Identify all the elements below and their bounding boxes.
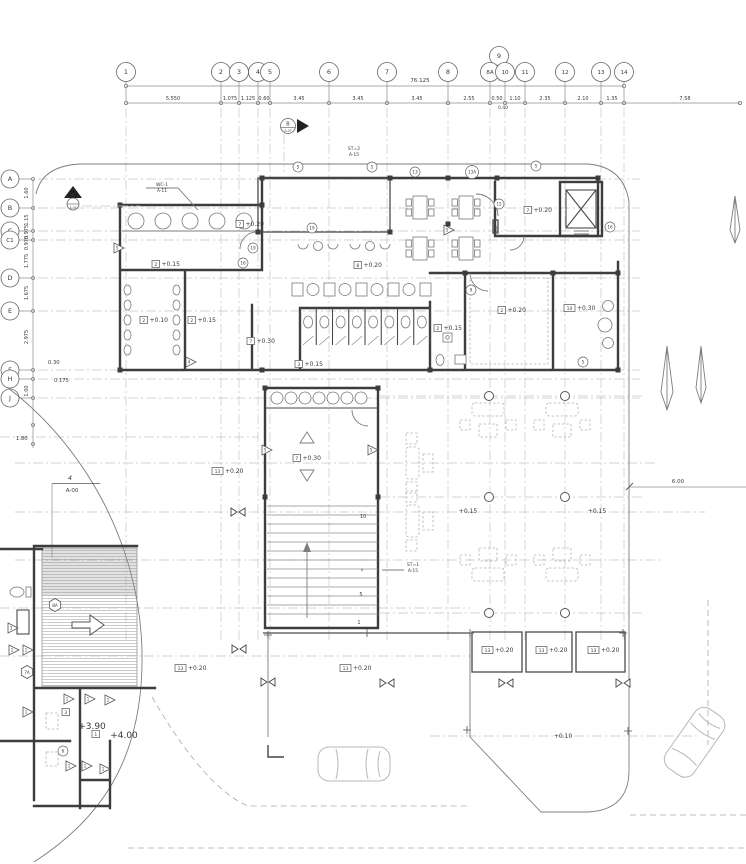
- grid-bubble-label: 12: [561, 70, 568, 76]
- building-walls: [0, 178, 625, 808]
- grid-bubble-label: J: [8, 394, 11, 402]
- floor-plan-drawing: 1234567898A1011121314ABCC1DEFHJ5.5501.07…: [0, 0, 746, 864]
- armchair: [406, 540, 417, 551]
- dining-chair: [475, 209, 481, 216]
- grid-bubble-label: 8: [446, 68, 450, 76]
- level-triangle-down: [300, 470, 314, 481]
- tree-icon: [661, 346, 673, 410]
- storage-counter-dashed: [470, 278, 548, 364]
- dining-chair: [475, 199, 481, 206]
- annotation: +3.90: [78, 722, 106, 732]
- toilet-fixture: [436, 355, 444, 366]
- coffee-table: [423, 512, 433, 530]
- site-edge-southeast: [470, 633, 629, 812]
- urinal: [124, 315, 131, 325]
- lavatory-round: [339, 284, 351, 296]
- counter-stool-round: [314, 242, 323, 251]
- dimension-label: 0.40: [498, 105, 508, 111]
- wall-tick: [466, 629, 474, 637]
- dimension-label: 2.10: [577, 96, 588, 102]
- grid-bubble-label: 2: [219, 68, 223, 76]
- toilet-pan: [401, 316, 410, 328]
- driveway-dashed-edge: [152, 697, 470, 806]
- annotation: +0.10: [554, 733, 573, 740]
- level-box-number: 2: [142, 318, 145, 324]
- wall-tick: [264, 631, 272, 639]
- armchair: [460, 420, 470, 430]
- urinal: [124, 285, 131, 295]
- keynote-number: 1: [66, 697, 69, 702]
- level-value: +0.10: [150, 317, 169, 324]
- column-square: [256, 230, 261, 235]
- locker-circle: [355, 392, 367, 404]
- car-top-view: [318, 747, 390, 781]
- stall-door: [303, 336, 314, 345]
- column-square: [263, 386, 268, 391]
- annotation: 10: [360, 514, 366, 520]
- column-circle: [485, 493, 494, 502]
- toilet-pan: [320, 316, 329, 328]
- grid-bubble-label: A: [8, 175, 13, 183]
- urinal: [173, 345, 180, 355]
- keynote-number: 4: [188, 360, 191, 365]
- level-box-number: 7: [238, 222, 241, 228]
- column-bowtie: [232, 645, 246, 653]
- keynote-number: 1: [84, 764, 87, 769]
- column-square: [495, 176, 500, 181]
- dining-chair: [452, 209, 458, 216]
- lavatory: [292, 283, 303, 296]
- counter-stool: [328, 244, 338, 249]
- section-sheet-ref: A-05: [69, 206, 76, 210]
- dimension-label: 1.80: [16, 436, 28, 442]
- level-value: +0.20: [364, 262, 383, 269]
- coffee-table: [553, 548, 571, 561]
- keynote-number: 1: [107, 698, 110, 703]
- stair-arrow-head: [303, 542, 311, 552]
- level-value: +0.15: [162, 261, 181, 268]
- grid-bubble-label: D: [7, 274, 12, 282]
- level-value: +0.30: [257, 338, 276, 345]
- stall-door: [417, 336, 428, 345]
- elevator-door: [574, 231, 589, 234]
- toilet-pan: [336, 316, 345, 328]
- wall-tick: [624, 727, 632, 735]
- toilet-pan: [385, 316, 394, 328]
- annotation: +0.15: [459, 508, 478, 515]
- trees: [661, 196, 740, 410]
- dining-table: [459, 196, 473, 219]
- locker-circle: [285, 392, 297, 404]
- keynote-number: 16: [240, 261, 246, 266]
- column-square: [118, 203, 123, 208]
- keynote-number: 5: [371, 165, 374, 170]
- column-square: [118, 368, 123, 373]
- level-triangle-up: [300, 432, 314, 443]
- keynote-number: 19: [250, 246, 256, 251]
- level-box-number: 13: [539, 648, 545, 654]
- dimension-label: 0.30: [48, 360, 60, 366]
- keynote-number: 5: [582, 360, 585, 365]
- wash-basin: [182, 213, 198, 229]
- tree-icon: [696, 346, 706, 403]
- dining-chair: [475, 240, 481, 247]
- level-value: +0.20: [534, 207, 553, 214]
- grid-bubble-label: 5: [268, 68, 272, 76]
- dimension-label: 1.00: [24, 385, 30, 396]
- locker-circle: [313, 392, 325, 404]
- column-square: [260, 203, 265, 208]
- keynote-number: 1: [11, 648, 14, 653]
- keynote-number: 16: [607, 225, 613, 230]
- closet: [17, 610, 29, 634]
- column-square: [376, 495, 381, 500]
- detail-number: 4: [68, 474, 72, 482]
- keynote-number: 13A: [468, 170, 476, 175]
- level-box-number: 13: [215, 469, 221, 475]
- locker-circle: [327, 392, 339, 404]
- dimension-label: 0.50: [491, 96, 502, 102]
- wall-tick: [619, 629, 627, 637]
- level-box-number: 10: [567, 306, 573, 312]
- level-box-number: 3: [64, 710, 67, 716]
- ramp: [42, 548, 137, 686]
- counter-stool: [298, 244, 308, 249]
- section-marker-triangle: [297, 119, 309, 133]
- urinal: [124, 300, 131, 310]
- armchair: [406, 433, 417, 444]
- dining-chair: [475, 250, 481, 257]
- column-bowtie: [380, 679, 394, 687]
- column-bowtie: [616, 679, 630, 687]
- grid-bubble-label: 7: [385, 68, 389, 76]
- keynote-number: 1: [25, 710, 28, 715]
- sofa-vertical: [406, 505, 419, 537]
- section-letter: B: [286, 122, 290, 128]
- wash-basin: [155, 213, 171, 229]
- toilet-pan: [352, 316, 361, 328]
- callout-title: ST=2: [348, 146, 360, 152]
- urinal: [173, 315, 180, 325]
- urinal: [173, 300, 180, 310]
- grid-bubble-label: B: [8, 204, 12, 212]
- urinal: [173, 285, 180, 295]
- dimension-label: 0.975: [24, 236, 30, 250]
- stall-door: [401, 336, 412, 345]
- grid-bubble-label: 4: [256, 68, 260, 76]
- level-box-number: 1: [94, 732, 97, 738]
- tree-icon: [730, 196, 740, 243]
- coffee-table: [479, 424, 497, 437]
- sofa: [546, 403, 578, 416]
- armchair: [506, 420, 516, 430]
- dining-chair: [406, 240, 412, 247]
- column-square: [551, 271, 556, 276]
- keynote-number: 5: [370, 448, 373, 453]
- column-square: [376, 386, 381, 391]
- dining-chair: [406, 250, 412, 257]
- level-value: +0.20: [188, 665, 207, 672]
- annotation: FHC: [494, 224, 499, 232]
- toilet-pan: [417, 316, 426, 328]
- level-box-number: 7: [249, 339, 252, 345]
- keynote-number: 1: [87, 697, 90, 702]
- dining-chair: [452, 240, 458, 247]
- keynote-number: 5: [535, 164, 538, 169]
- annotation: +4.00: [110, 731, 138, 741]
- dining-chair: [406, 209, 412, 216]
- dimension-label: 3.45: [352, 96, 363, 102]
- lavatory: [388, 283, 399, 296]
- level-value: +0.30: [577, 305, 596, 312]
- keynote-number: 5: [264, 448, 267, 453]
- column-square: [446, 176, 451, 181]
- dimension-label: 2.975: [24, 330, 30, 344]
- coffee-table: [479, 548, 497, 561]
- furniture-layer: [231, 392, 630, 688]
- wc-toilet: [10, 587, 24, 597]
- callout-ref: A-15: [349, 152, 359, 158]
- stall-door: [352, 336, 363, 345]
- grid-bubble-label: E: [8, 307, 12, 315]
- lavatory-round: [403, 284, 415, 296]
- keynote-number: 1: [25, 648, 28, 653]
- dining-chair: [429, 240, 435, 247]
- dimension-label: 1.125: [241, 96, 255, 102]
- column-square: [388, 176, 393, 181]
- stall-door: [336, 336, 347, 345]
- coffee-table: [553, 424, 571, 437]
- section-sheet-ref: A-07: [284, 129, 291, 133]
- lavatory: [420, 283, 431, 296]
- level-value: +0.20: [353, 665, 372, 672]
- level-box-number: 2: [190, 318, 193, 324]
- keynote-number: 9: [470, 288, 473, 293]
- column-square: [260, 176, 265, 181]
- grid-bubble-label: H: [8, 375, 13, 383]
- keynote-number: 5: [446, 228, 449, 233]
- column-square: [596, 176, 601, 181]
- annotation: +0.15: [588, 508, 607, 515]
- keynote-number: 8A: [52, 603, 58, 608]
- callout-leader: [146, 188, 198, 210]
- level-value: +0.15: [444, 325, 463, 332]
- level-box-number: 13: [591, 648, 597, 654]
- level-box-number: 2: [500, 308, 503, 314]
- dimension-label: 7.58: [679, 96, 690, 102]
- level-value: +0.20: [508, 307, 527, 314]
- column-square: [616, 368, 621, 373]
- kitchen-sink-1: [603, 301, 614, 312]
- column-square: [388, 230, 393, 235]
- level-value: +0.15: [198, 317, 217, 324]
- level-box-number: 13: [485, 648, 491, 654]
- grid-bubble-label: 6: [327, 68, 331, 76]
- kitchen-sink-3: [603, 338, 614, 349]
- column-square: [463, 271, 468, 276]
- keynote-number: 19: [309, 226, 315, 231]
- level-box-number: 2: [154, 262, 157, 268]
- cars: [318, 703, 729, 781]
- callout-ref: A-11: [157, 188, 167, 194]
- elevator-x: [566, 190, 596, 228]
- kitchen-room: [258, 178, 390, 232]
- sofa: [472, 403, 504, 416]
- dimension-label: 3.45: [293, 96, 304, 102]
- stall-door: [319, 336, 330, 345]
- dining-chair: [429, 209, 435, 216]
- annotation: ‹: [361, 566, 364, 574]
- stall-door: [368, 336, 379, 345]
- floor-opening-2: [46, 752, 58, 766]
- level-box-number: 3: [297, 362, 300, 368]
- grid-bubble-label: C1: [6, 238, 14, 244]
- curb-bracket: [268, 745, 284, 757]
- callout-title: ST=1: [407, 562, 419, 568]
- sofa: [472, 568, 504, 581]
- dimension-label: 5.550: [166, 96, 180, 102]
- column-bowtie: [499, 679, 513, 687]
- floor-plan-page: 1234567898A1011121314ABCC1DEFHJ5.5501.07…: [0, 0, 746, 864]
- grid-bubble-label: 8A: [486, 70, 494, 76]
- counter-stool: [350, 244, 360, 249]
- keynote-number: 3: [10, 626, 13, 631]
- urinal: [173, 330, 180, 340]
- mop-sink-drain: [446, 336, 450, 340]
- sofa: [546, 568, 578, 581]
- door-swings: [240, 194, 524, 426]
- armchair: [580, 420, 590, 430]
- locker-circle: [341, 392, 353, 404]
- column-circle: [485, 392, 494, 401]
- level-box-number: 13: [178, 666, 184, 672]
- column-circle: [561, 493, 570, 502]
- grid-bubble-label: 1: [124, 68, 128, 76]
- dimension-label: 1.075: [223, 96, 237, 102]
- wash-basin: [128, 213, 144, 229]
- car-top-view: [660, 703, 729, 781]
- dining-chair: [406, 199, 412, 206]
- dining-table: [459, 237, 473, 260]
- keynote-number: 1: [68, 764, 71, 769]
- level-box-number: 8: [356, 263, 359, 269]
- sink-fixture: [455, 355, 466, 364]
- level-box-number: 2: [436, 326, 439, 332]
- toilet-pan: [369, 316, 378, 328]
- dimension-label: 0.60: [258, 96, 269, 102]
- keynote-number: 5: [297, 165, 300, 170]
- lavatory: [324, 283, 335, 296]
- dimension-label: 1.15: [24, 214, 30, 225]
- keynote-number: 1: [102, 767, 105, 772]
- level-value: +0.15: [305, 361, 324, 368]
- lavatory: [356, 283, 367, 296]
- grid-bubble-label: 9: [497, 52, 501, 60]
- dining-chair: [429, 250, 435, 257]
- callout-ref: A-15: [408, 568, 418, 574]
- keynote-number: 13: [412, 170, 418, 175]
- detail-sheet-ref: A-00: [66, 488, 79, 494]
- grid-bubble-label: 13: [597, 70, 605, 76]
- toilet-pan: [304, 316, 313, 328]
- column-square: [260, 368, 265, 373]
- dimension-label: 1.60: [24, 187, 30, 198]
- dimension-label: 1.10: [509, 96, 520, 102]
- level-value: +0.20: [495, 647, 514, 654]
- dining-chair: [452, 199, 458, 206]
- locker-circle: [299, 392, 311, 404]
- stall-door: [384, 336, 395, 345]
- annotation: 1: [357, 620, 360, 626]
- counter-stool: [380, 244, 390, 249]
- keynote-number: 5: [116, 246, 119, 251]
- dimension-label: 1.675: [24, 286, 30, 300]
- dining-table: [413, 237, 427, 260]
- grid-bubble-label: 14: [620, 70, 628, 76]
- dining-chair: [452, 250, 458, 257]
- counter-stool-round: [366, 242, 375, 251]
- grid-bubble-label: 10: [501, 70, 509, 76]
- column-square: [263, 495, 268, 500]
- lavatory-round: [371, 284, 383, 296]
- dimension-label: 1.775: [24, 254, 30, 268]
- column-circle: [561, 609, 570, 618]
- level-value: +0.30: [303, 455, 322, 462]
- column-circle: [485, 609, 494, 618]
- urinal: [124, 330, 131, 340]
- dimension-label: 6.00: [672, 479, 685, 485]
- lavatory-round: [307, 284, 319, 296]
- level-box-number: 7: [295, 456, 298, 462]
- annotation: 5: [359, 592, 362, 598]
- grid-bubble-label: 3: [237, 68, 241, 76]
- dimension-label: 2.35: [539, 96, 550, 102]
- level-box-number: 7: [526, 208, 529, 214]
- callout-title: WC-1: [156, 182, 168, 188]
- dimension-label: 0.175: [54, 378, 69, 384]
- level-value: +0.20: [549, 647, 568, 654]
- dining-table: [413, 196, 427, 219]
- dimension-label: 3.45: [411, 96, 422, 102]
- urinal: [124, 345, 131, 355]
- dimension-label: 2.55: [463, 96, 474, 102]
- column-circle: [561, 392, 570, 401]
- wall-tick: [363, 629, 371, 637]
- armchair: [534, 420, 544, 430]
- keynote-number: 15: [496, 202, 502, 207]
- wc-tank: [26, 587, 31, 597]
- column-square: [616, 271, 621, 276]
- keynote-number: 6: [62, 749, 65, 754]
- dimension-label: 1.35: [606, 96, 617, 102]
- level-box-number: 13: [343, 666, 349, 672]
- wash-basin: [209, 213, 225, 229]
- overall-dimension: 76.125: [410, 78, 430, 84]
- level-value: +0.20: [601, 647, 620, 654]
- keynote-number: 7A: [24, 670, 30, 675]
- locker-circle: [271, 392, 283, 404]
- column-square: [428, 368, 433, 373]
- kitchen-sink-2: [598, 318, 612, 332]
- grid-bubble-label: 11: [521, 70, 529, 76]
- floor-opening-1: [46, 713, 58, 729]
- level-value: +0.20: [246, 221, 265, 228]
- dining-chair: [429, 199, 435, 206]
- level-value: +0.20: [225, 468, 244, 475]
